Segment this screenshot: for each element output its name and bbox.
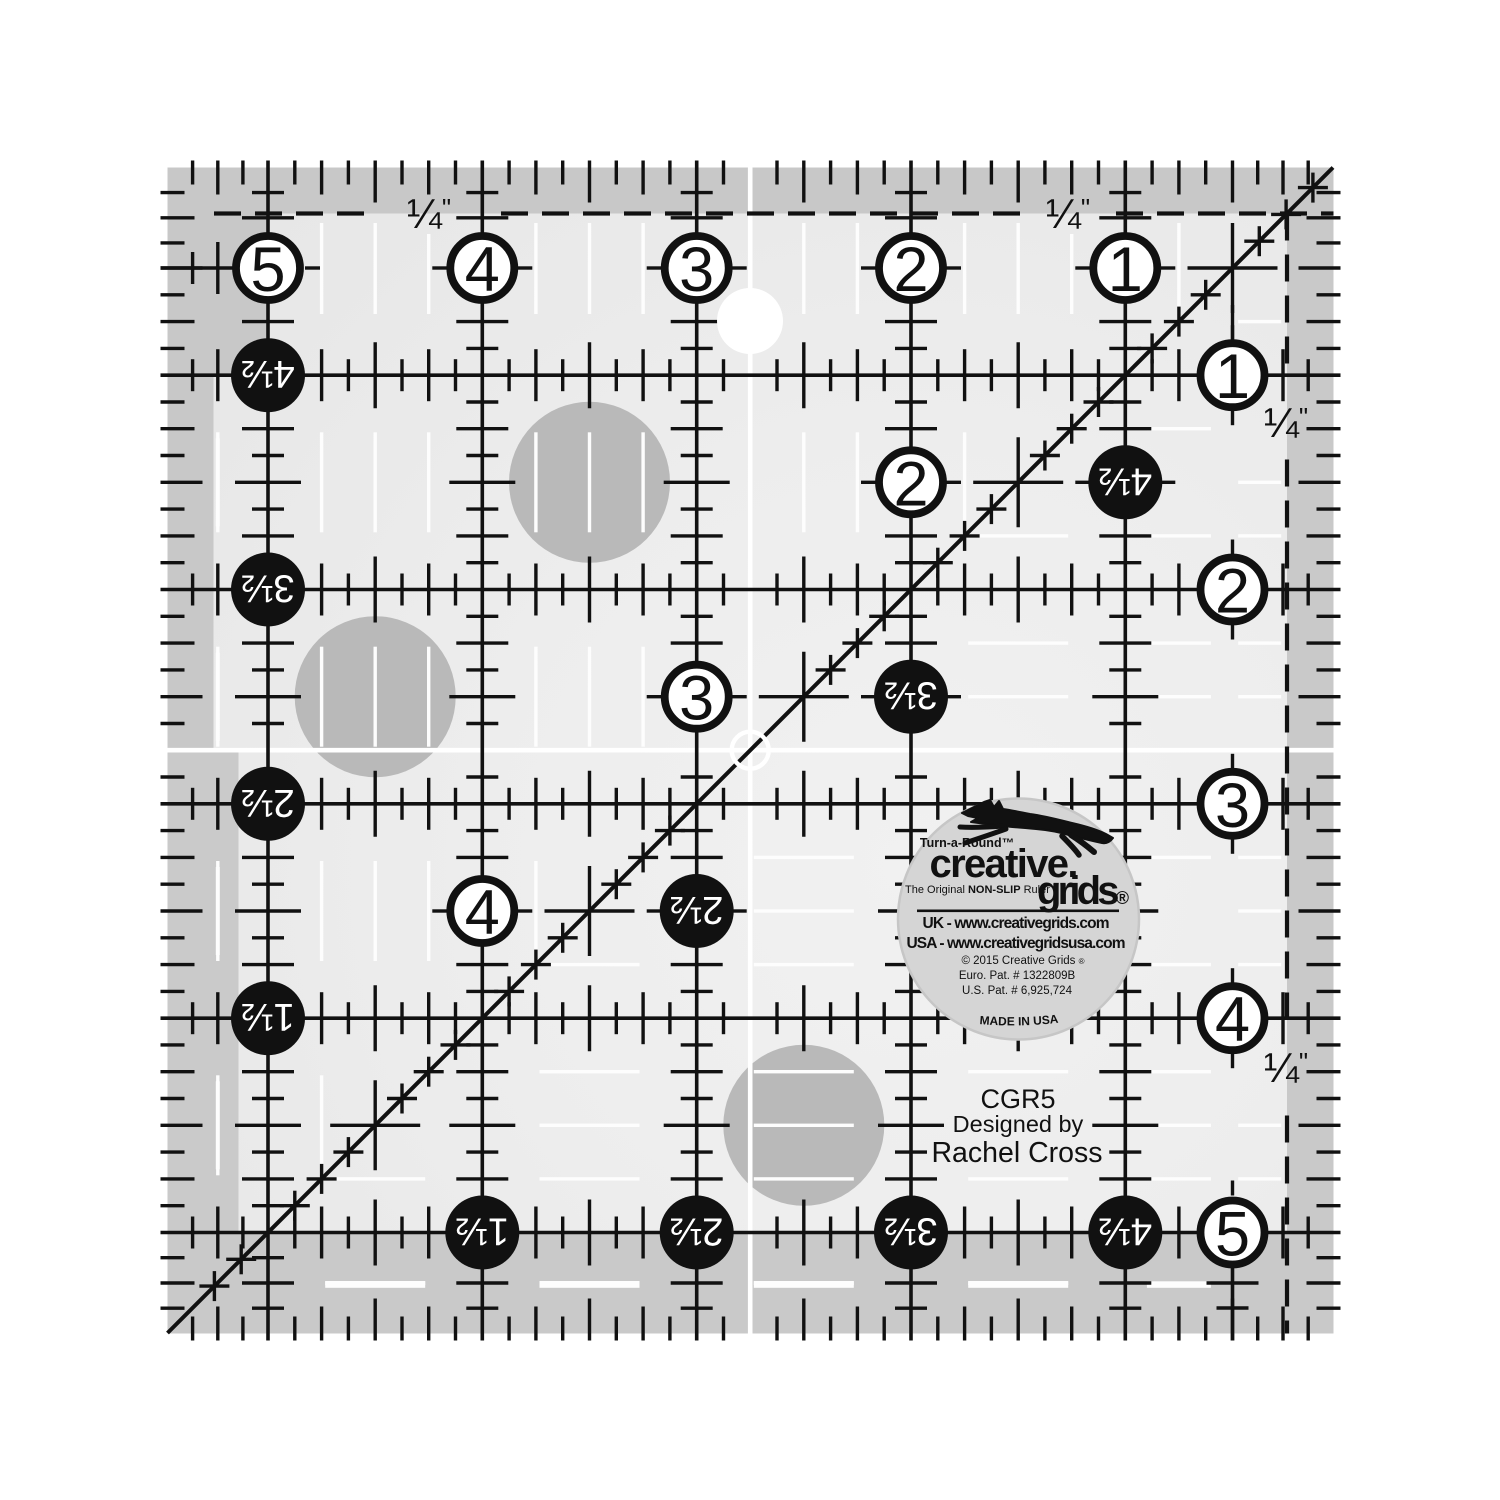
svg-text:USA - www.creativegridsusa.com: USA - www.creativegridsusa.com (907, 935, 1126, 952)
svg-text:3: 3 (1215, 771, 1250, 841)
svg-text:UK - www.creativegrids.com: UK - www.creativegrids.com (923, 915, 1110, 932)
svg-text:Rachel Cross: Rachel Cross (931, 1137, 1102, 1169)
svg-text:1: 1 (1215, 342, 1250, 412)
svg-text:1½: 1½ (241, 995, 295, 1038)
svg-text:4½: 4½ (1099, 1210, 1153, 1253)
svg-text:2½: 2½ (241, 781, 295, 824)
svg-text:CGR5: CGR5 (980, 1084, 1055, 1114)
svg-text:U.S. Pat. # 6,925,724: U.S. Pat. # 6,925,724 (962, 985, 1073, 997)
svg-text:grids®: grids® (1037, 869, 1129, 913)
svg-text:1: 1 (1108, 235, 1143, 305)
svg-text:3½: 3½ (241, 567, 295, 610)
svg-text:3½: 3½ (884, 1210, 938, 1253)
svg-text:Designed by: Designed by (953, 1111, 1084, 1137)
svg-text:Euro. Pat. # 1322809B: Euro. Pat. # 1322809B (959, 970, 1076, 982)
svg-text:4: 4 (465, 235, 500, 305)
svg-text:4: 4 (1215, 985, 1250, 1055)
svg-text:2½: 2½ (670, 888, 724, 931)
svg-text:3: 3 (679, 235, 714, 305)
svg-text:4: 4 (465, 878, 500, 948)
svg-text:4½: 4½ (241, 352, 295, 395)
svg-text:© 2015 Creative Grids ®: © 2015 Creative Grids ® (961, 955, 1084, 967)
svg-text:2: 2 (1215, 557, 1250, 627)
svg-text:5: 5 (250, 235, 285, 305)
svg-text:The Original NON-SLIP Ruler: The Original NON-SLIP Ruler (905, 884, 1050, 896)
svg-text:2: 2 (893, 235, 928, 305)
svg-text:4½: 4½ (1099, 459, 1153, 502)
svg-text:2: 2 (893, 449, 928, 519)
svg-text:3: 3 (679, 664, 714, 734)
svg-text:1½: 1½ (456, 1210, 510, 1253)
svg-text:3½: 3½ (884, 674, 938, 717)
svg-text:2½: 2½ (670, 1210, 724, 1253)
svg-text:5: 5 (1215, 1200, 1250, 1270)
